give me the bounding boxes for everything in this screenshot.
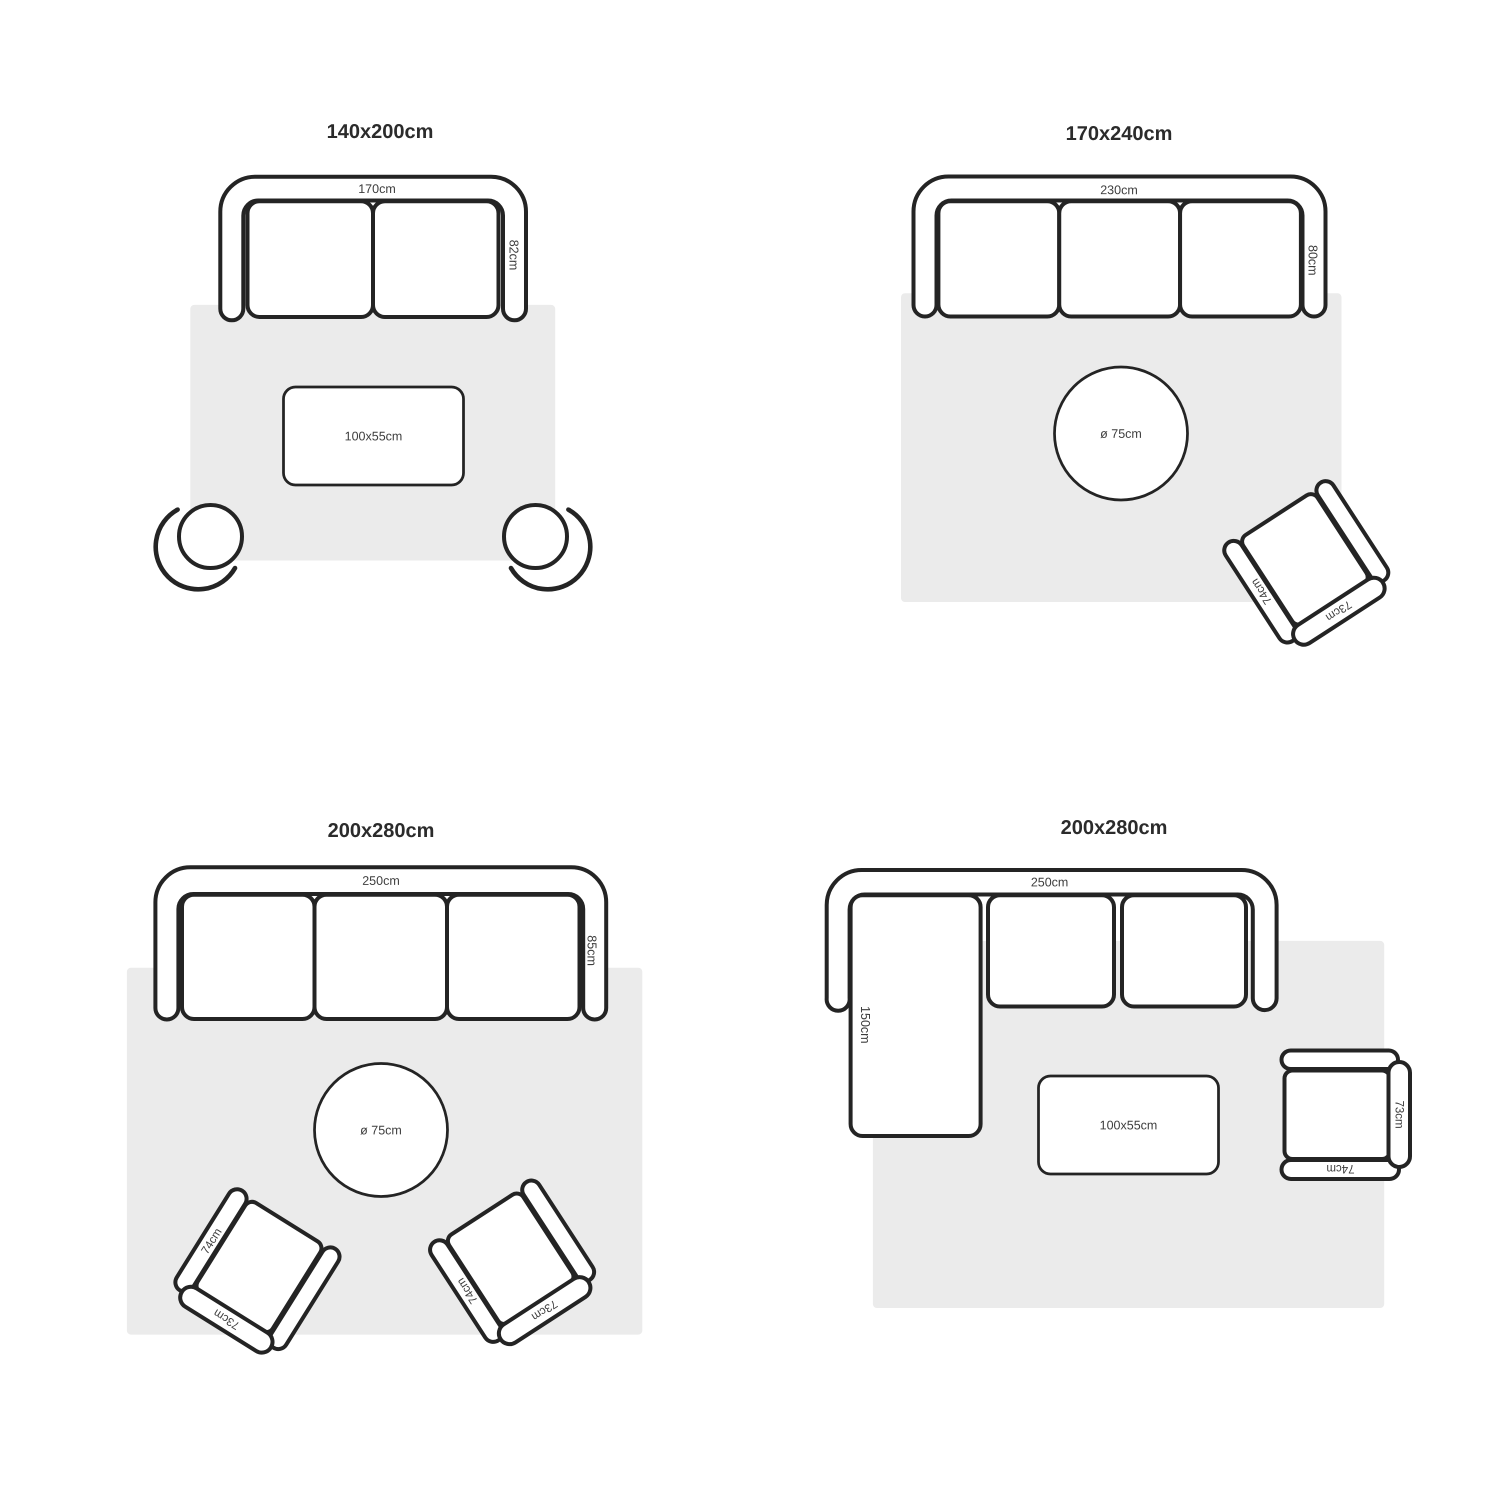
svg-text:ø 75cm: ø 75cm xyxy=(360,1123,402,1137)
svg-text:80cm: 80cm xyxy=(1306,245,1320,276)
svg-text:200x280cm: 200x280cm xyxy=(328,820,435,842)
svg-text:74cm: 74cm xyxy=(1326,1162,1354,1174)
svg-text:250cm: 250cm xyxy=(362,874,400,888)
svg-text:170x240cm: 170x240cm xyxy=(1066,123,1173,145)
svg-text:200x280cm: 200x280cm xyxy=(1061,817,1168,839)
svg-text:73cm: 73cm xyxy=(1392,1100,1404,1128)
svg-text:150cm: 150cm xyxy=(858,1006,872,1044)
svg-text:230cm: 230cm xyxy=(1100,183,1138,197)
svg-text:140x200cm: 140x200cm xyxy=(327,121,434,143)
svg-text:100x55cm: 100x55cm xyxy=(345,429,403,443)
svg-text:ø 75cm: ø 75cm xyxy=(1100,427,1142,441)
svg-text:82cm: 82cm xyxy=(507,240,521,271)
svg-text:170cm: 170cm xyxy=(358,182,396,196)
svg-text:85cm: 85cm xyxy=(585,935,599,966)
svg-text:250cm: 250cm xyxy=(1031,875,1069,889)
svg-text:100x55cm: 100x55cm xyxy=(1100,1118,1158,1132)
